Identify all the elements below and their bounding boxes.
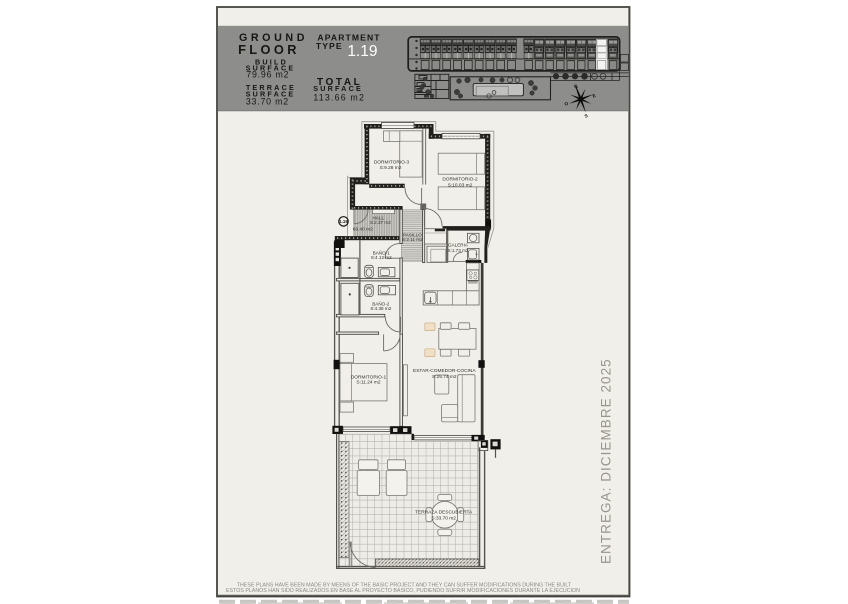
svg-text:FLOOR: FLOOR [238,42,300,57]
svg-text:ESTOS PLANOS HAN SIDO REALIZAD: ESTOS PLANOS HAN SIDO REALIZADOS EN BASE… [226,588,580,594]
svg-text:S:2.11 m2: S:2.11 m2 [402,237,423,242]
svg-text:1.19: 1.19 [347,43,377,60]
svg-text:ESTAR-COMEDOR-COCINA: ESTAR-COMEDOR-COCINA [413,368,476,374]
svg-text:79.96 m2: 79.96 m2 [246,70,289,80]
svg-text:S:1.73 m2: S:1.73 m2 [448,248,469,253]
svg-text:DORMITORIO-1: DORMITORIO-1 [351,374,387,380]
svg-text:69.40 m2: 69.40 m2 [353,226,373,232]
svg-text:GALERIA: GALERIA [448,243,469,248]
svg-text:1.19: 1.19 [339,219,348,224]
svg-text:TERRAZA DESCUBIERTA: TERRAZA DESCUBIERTA [415,510,473,516]
svg-text:DORMITORIO-2: DORMITORIO-2 [442,177,478,183]
svg-text:S:25.74 m2: S:25.74 m2 [432,374,457,380]
svg-text:DORMITORIO-3: DORMITORIO-3 [374,159,410,165]
svg-text:S:9.28 m2: S:9.28 m2 [380,165,402,171]
svg-text:S:2.37 m2: S:2.37 m2 [370,220,391,225]
svg-text:TYPE: TYPE [316,41,343,51]
svg-text:S:11.24 m2: S:11.24 m2 [356,380,381,386]
svg-text:S:4.38 m2: S:4.38 m2 [370,306,391,311]
svg-text:S:4.12 m2: S:4.12 m2 [371,255,392,260]
svg-text:ENTREGA: DICIEMBRE 2025: ENTREGA: DICIEMBRE 2025 [599,358,614,564]
svg-text:33.70 m2: 33.70 m2 [246,97,289,107]
svg-text:113.66 m2: 113.66 m2 [313,92,365,102]
svg-text:S:33.70 m2: S:33.70 m2 [431,516,456,522]
svg-text:S:10.03 m2: S:10.03 m2 [448,182,473,188]
